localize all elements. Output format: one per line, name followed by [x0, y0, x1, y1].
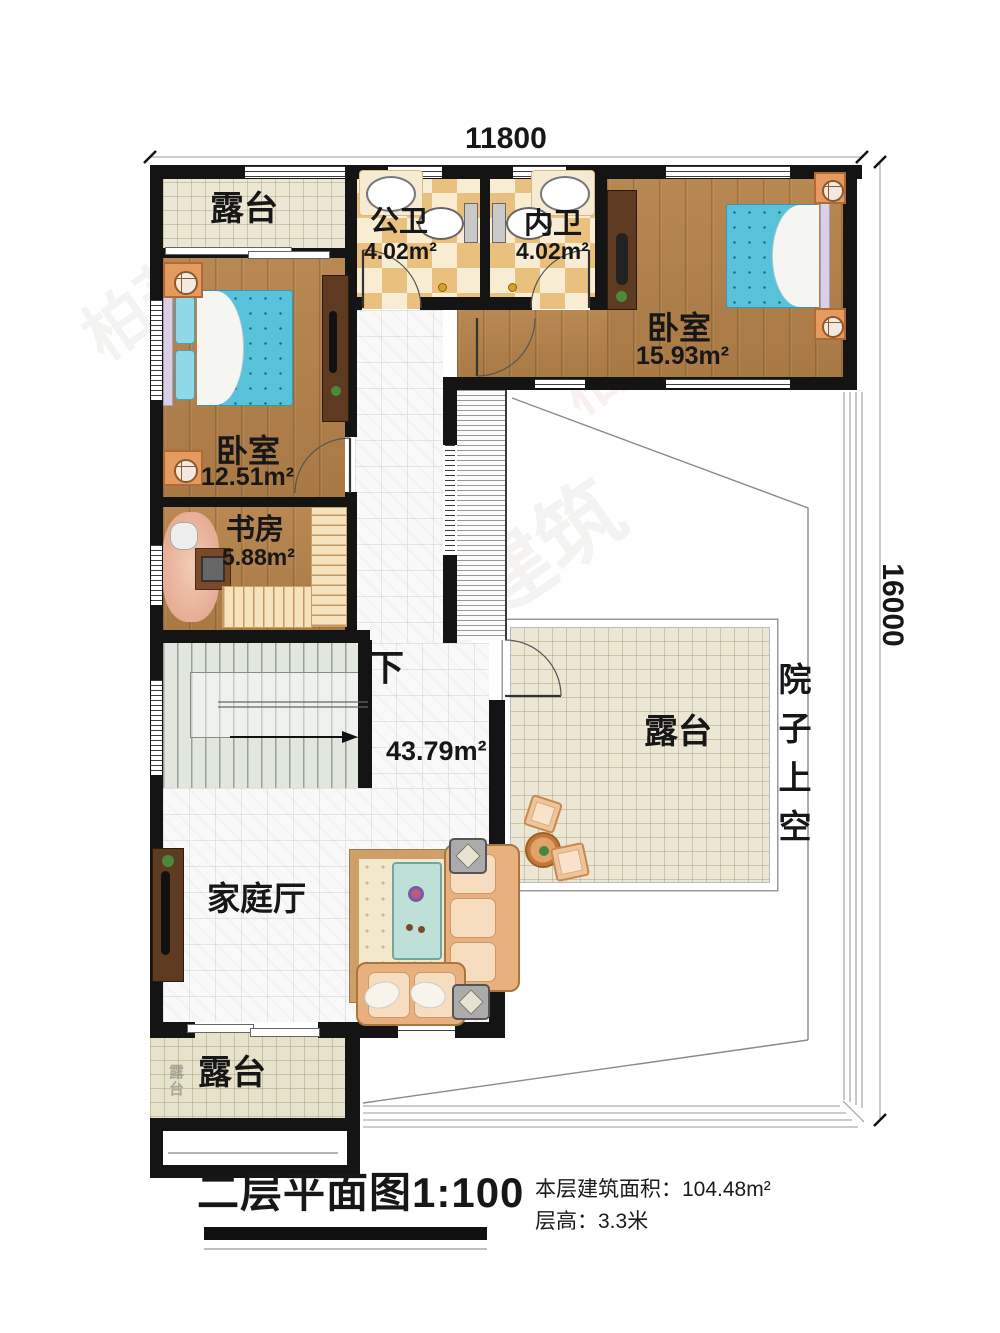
floor-height-value: 3.3米	[598, 1210, 648, 1233]
dimension-top: 11800	[465, 124, 547, 154]
room-area-study: 5.88m²	[222, 546, 295, 569]
floor-area-line: 本层建筑面积：104.48m²	[535, 1174, 771, 1206]
room-label-inner-bath: 内卫	[524, 210, 582, 239]
title-underline-bar	[204, 1227, 487, 1240]
room-area-public-bath: 4.02m²	[364, 240, 437, 263]
room-area-bedroom-left: 12.51m²	[201, 465, 294, 490]
room-label-terrace-center: 露台	[644, 715, 712, 749]
courtyard-label: 院子上空	[776, 662, 809, 858]
room-area-inner-bath: 4.02m²	[516, 240, 589, 263]
room-label-terrace-top: 露台	[210, 192, 278, 226]
room-label-bedroom-right: 卧室	[647, 312, 711, 344]
stairs-arrow	[218, 702, 368, 743]
room-label-terrace-bottom: 露台	[198, 1056, 266, 1090]
stair-direction-label: 下	[368, 650, 404, 686]
room-label-family-hall: 家庭厅	[207, 882, 306, 915]
terrace-ghost-watermark: 露台	[168, 1064, 183, 1098]
door-arcs	[295, 250, 589, 696]
floor-area-value: 104.48m²	[682, 1178, 771, 1201]
dimension-right: 16000	[877, 555, 907, 655]
room-label-study: 书房	[226, 516, 284, 545]
door-leaves	[350, 250, 589, 696]
stats-block: 本层建筑面积：104.48m² 层高：3.3米	[535, 1174, 771, 1238]
hall-area-label: 43.79m²	[386, 738, 487, 765]
floor-plan: 柏菘建筑 柏菘建筑 柏菘建筑 .com	[0, 0, 1000, 1333]
floor-area-label: 本层建筑面积：	[535, 1178, 682, 1201]
title-underline-thin	[204, 1248, 487, 1250]
linework	[0, 0, 1000, 1333]
dimension-lines	[144, 151, 886, 1126]
floor-height-line: 层高：3.3米	[535, 1206, 771, 1238]
plan-title: 二层平面图1:100	[197, 1172, 524, 1214]
room-label-public-bath: 公卫	[370, 208, 428, 237]
floor-height-label: 层高：	[535, 1210, 598, 1233]
room-area-bedroom-right: 15.93m²	[636, 344, 729, 369]
